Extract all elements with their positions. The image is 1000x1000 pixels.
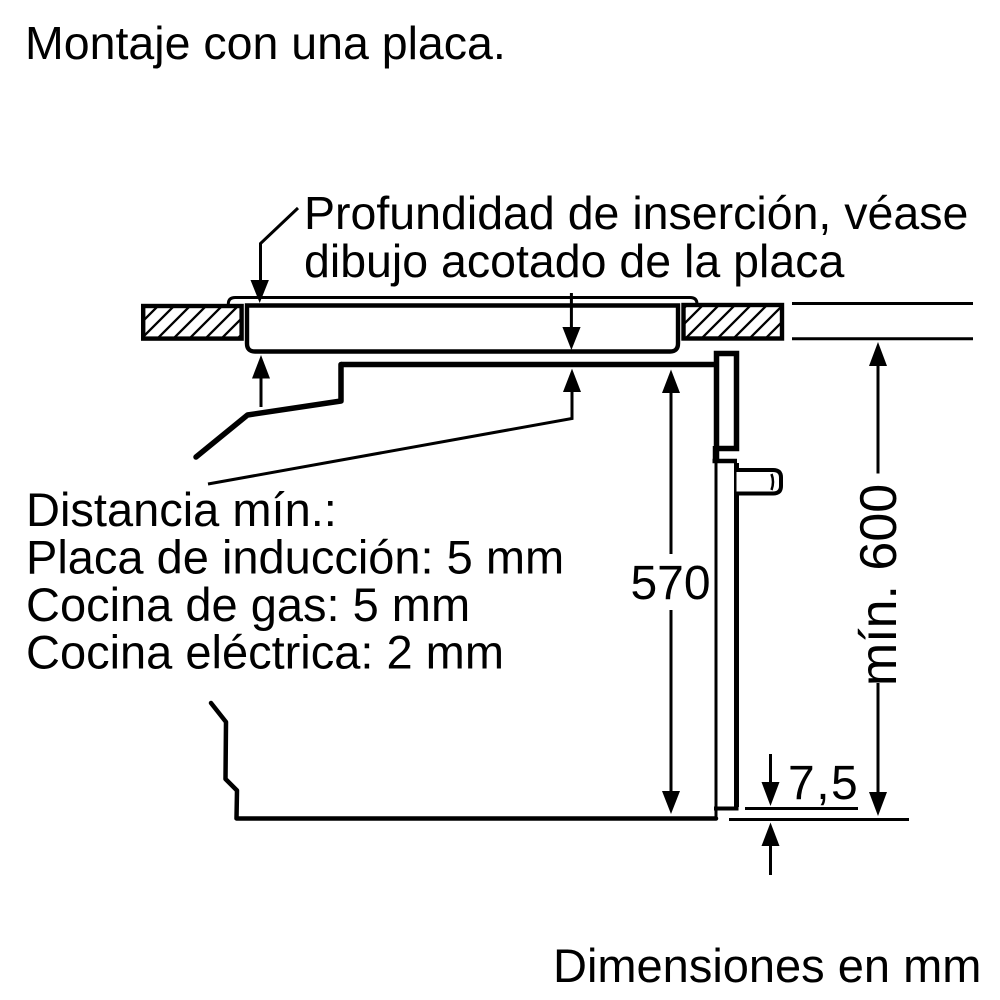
svg-text:7,5: 7,5	[788, 757, 859, 810]
svg-text:mín. 600: mín. 600	[850, 484, 908, 686]
svg-text:Profundidad de inserción, véas: Profundidad de inserción, véase	[304, 187, 968, 239]
svg-text:Cocina de gas: 5 mm: Cocina de gas: 5 mm	[26, 578, 470, 631]
svg-text:Dimensiones en mm: Dimensiones en mm	[553, 939, 981, 992]
svg-text:dibujo acotado de la placa: dibujo acotado de la placa	[304, 235, 844, 287]
svg-text:Cocina eléctrica: 2 mm: Cocina eléctrica: 2 mm	[26, 626, 504, 679]
svg-text:Montaje con una placa.: Montaje con una placa.	[25, 17, 506, 69]
svg-text:Distancia mín.:: Distancia mín.:	[26, 483, 337, 536]
svg-text:570: 570	[630, 557, 710, 610]
svg-text:Placa de inducción: 5 mm: Placa de inducción: 5 mm	[26, 531, 564, 584]
